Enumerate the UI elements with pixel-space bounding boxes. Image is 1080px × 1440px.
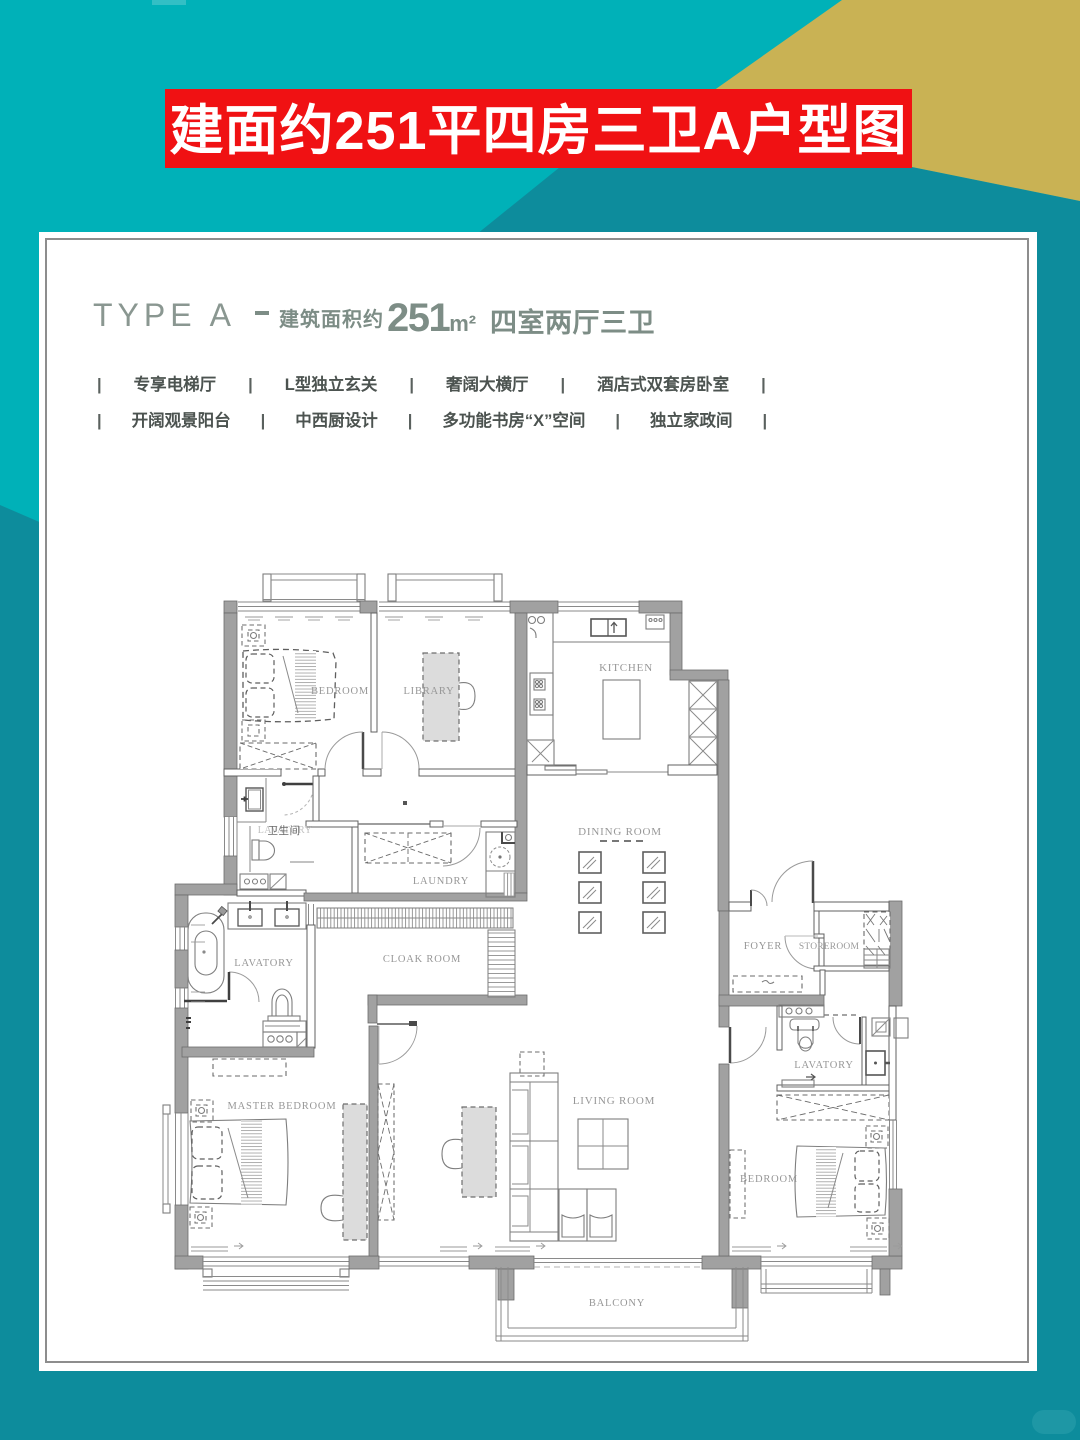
svg-text:LIBRARY: LIBRARY	[403, 686, 454, 697]
svg-text:DINING ROOM: DINING ROOM	[578, 826, 662, 838]
svg-text:KITCHEN: KITCHEN	[599, 662, 653, 674]
svg-text:LAVATORY: LAVATORY	[234, 958, 294, 969]
svg-text:LIVING ROOM: LIVING ROOM	[573, 1095, 655, 1107]
svg-text:LAVATORY: LAVATORY	[794, 1060, 854, 1071]
svg-text:FOYER: FOYER	[744, 941, 782, 952]
svg-text:STOREROOM: STOREROOM	[799, 942, 860, 952]
svg-text:卫生间: 卫生间	[268, 824, 301, 837]
svg-text:BEDROOM: BEDROOM	[740, 1174, 798, 1185]
svg-text:BALCONY: BALCONY	[589, 1298, 645, 1309]
svg-text:LAUNDRY: LAUNDRY	[413, 876, 469, 887]
svg-text:BEDROOM: BEDROOM	[311, 686, 369, 697]
svg-text:MASTER BEDROOM: MASTER BEDROOM	[228, 1101, 337, 1112]
svg-text:CLOAK ROOM: CLOAK ROOM	[383, 954, 461, 965]
